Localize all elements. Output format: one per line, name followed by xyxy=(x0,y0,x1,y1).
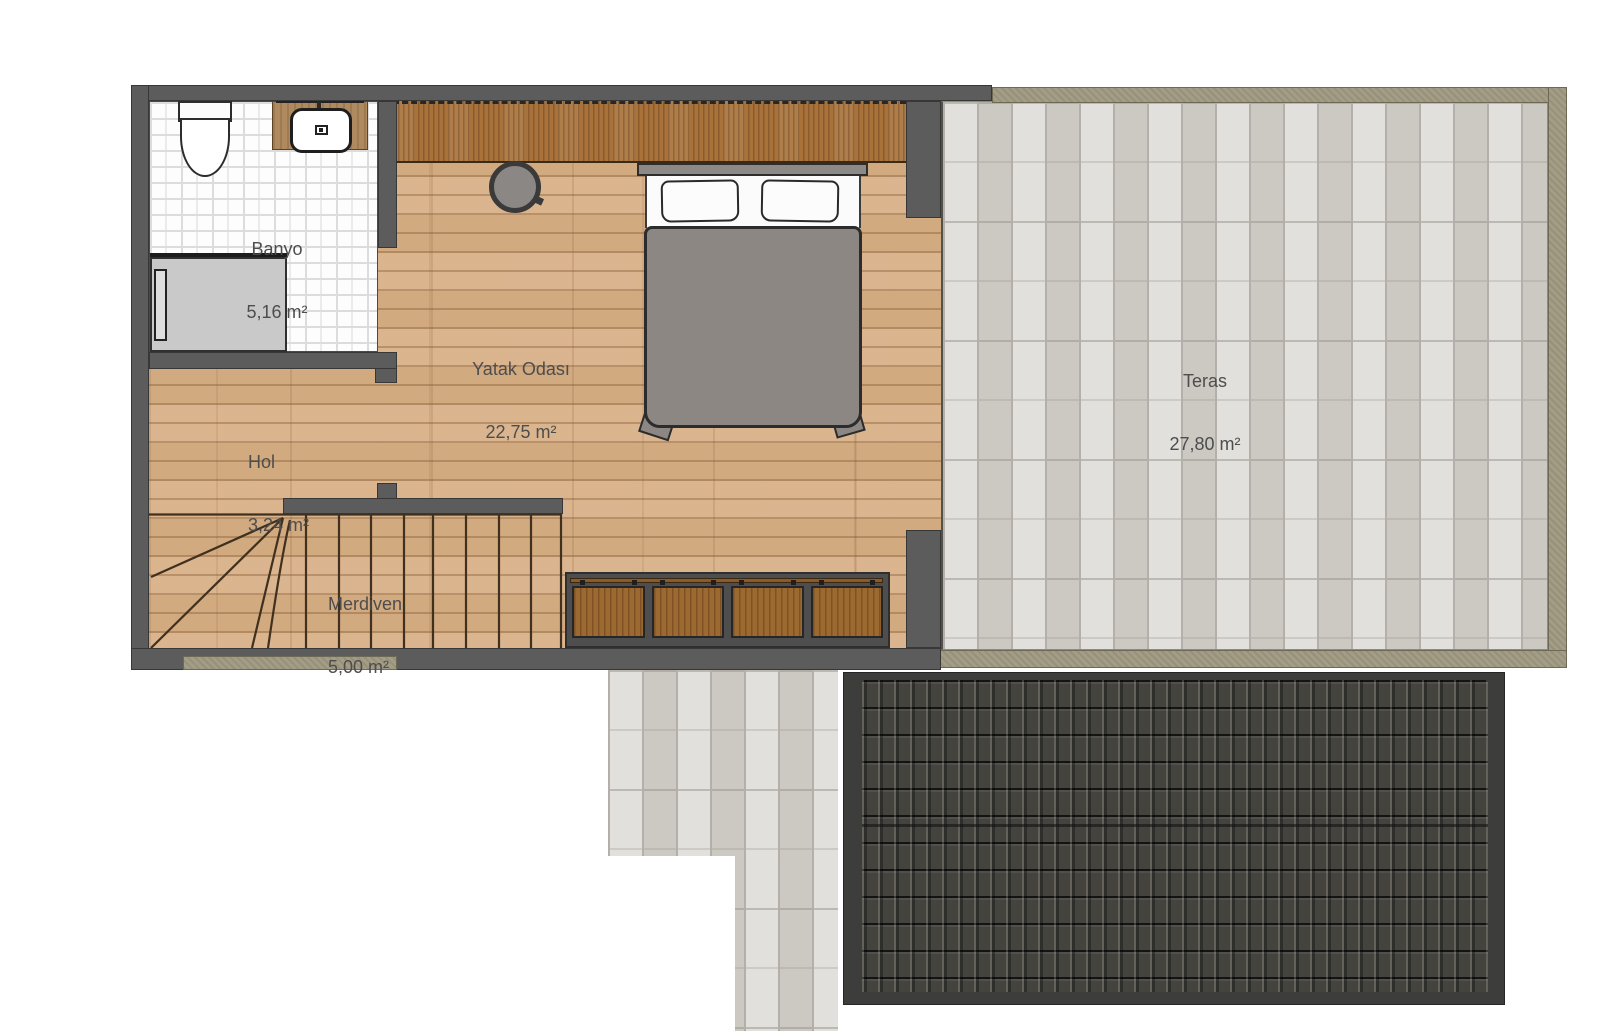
room-area: 22,75 m² xyxy=(426,422,616,443)
hinge-mark xyxy=(632,580,637,585)
bed-headboard xyxy=(637,163,868,176)
room-area: 27,80 m² xyxy=(1120,434,1290,455)
shower-handle xyxy=(154,269,167,341)
room-area: 5,00 m² xyxy=(328,657,458,678)
duvet xyxy=(644,226,862,428)
hinge-mark xyxy=(711,580,716,585)
hinge-mark xyxy=(791,580,796,585)
cabinet-door xyxy=(652,586,725,638)
room-area: 3,24 m² xyxy=(248,515,368,536)
wardrobe xyxy=(393,101,906,163)
wall-bottom xyxy=(131,648,941,670)
room-area: 5,16 m² xyxy=(212,302,342,323)
cabinet-door xyxy=(572,586,645,638)
cabinet-door xyxy=(731,586,804,638)
label-merdiven: Merdiven 5,00 m² xyxy=(328,552,458,720)
cabinet-rail xyxy=(570,578,883,583)
wall-bathroom-east xyxy=(378,101,397,248)
vanity xyxy=(272,99,368,154)
room-name: Hol xyxy=(248,452,368,473)
pillow-left xyxy=(661,179,740,222)
cabinet-door xyxy=(811,586,884,638)
room-name: Yatak Odası xyxy=(426,359,616,380)
hinge-mark xyxy=(580,580,585,585)
label-yatak-odasi: Yatak Odası 22,75 m² xyxy=(426,317,616,485)
roof-shingles xyxy=(862,680,1488,992)
cabinet-row xyxy=(565,572,890,648)
wall-hall-stub xyxy=(375,368,397,383)
label-teras: Teras 27,80 m² xyxy=(1120,329,1290,497)
toilet-bowl xyxy=(180,118,230,177)
sink-drain xyxy=(315,125,328,135)
terrace-curb-top xyxy=(992,87,1567,103)
room-name: Banyo xyxy=(212,239,342,260)
sink-basin xyxy=(290,108,352,153)
hinge-mark xyxy=(819,580,824,585)
room-name: Merdiven xyxy=(328,594,458,615)
hinge-mark xyxy=(870,580,875,585)
walkway-tiles xyxy=(608,670,838,1031)
hinge-mark xyxy=(660,580,665,585)
wall-stair-tab xyxy=(377,483,397,499)
wall-top xyxy=(131,85,992,101)
bed xyxy=(637,163,868,430)
toilet xyxy=(177,101,233,177)
pillow-right xyxy=(761,179,840,222)
label-banyo: Banyo 5,16 m² xyxy=(212,197,342,365)
hinge-mark xyxy=(739,580,744,585)
roof-ridge-line xyxy=(862,824,1488,827)
round-stool xyxy=(489,161,541,213)
terrace-curb-bottom xyxy=(935,650,1567,668)
floor-plan-canvas: Banyo 5,16 m² Yatak Odası 22,75 m² Hol 3… xyxy=(0,0,1600,1031)
wall-right-stub-top xyxy=(906,101,941,218)
wall-right-stub-bottom xyxy=(906,530,941,648)
wall-left xyxy=(131,85,149,670)
sink-drain-dot xyxy=(319,128,323,132)
room-name: Teras xyxy=(1120,371,1290,392)
terrace-curb-right xyxy=(1548,87,1567,668)
roof-block xyxy=(843,672,1505,1005)
